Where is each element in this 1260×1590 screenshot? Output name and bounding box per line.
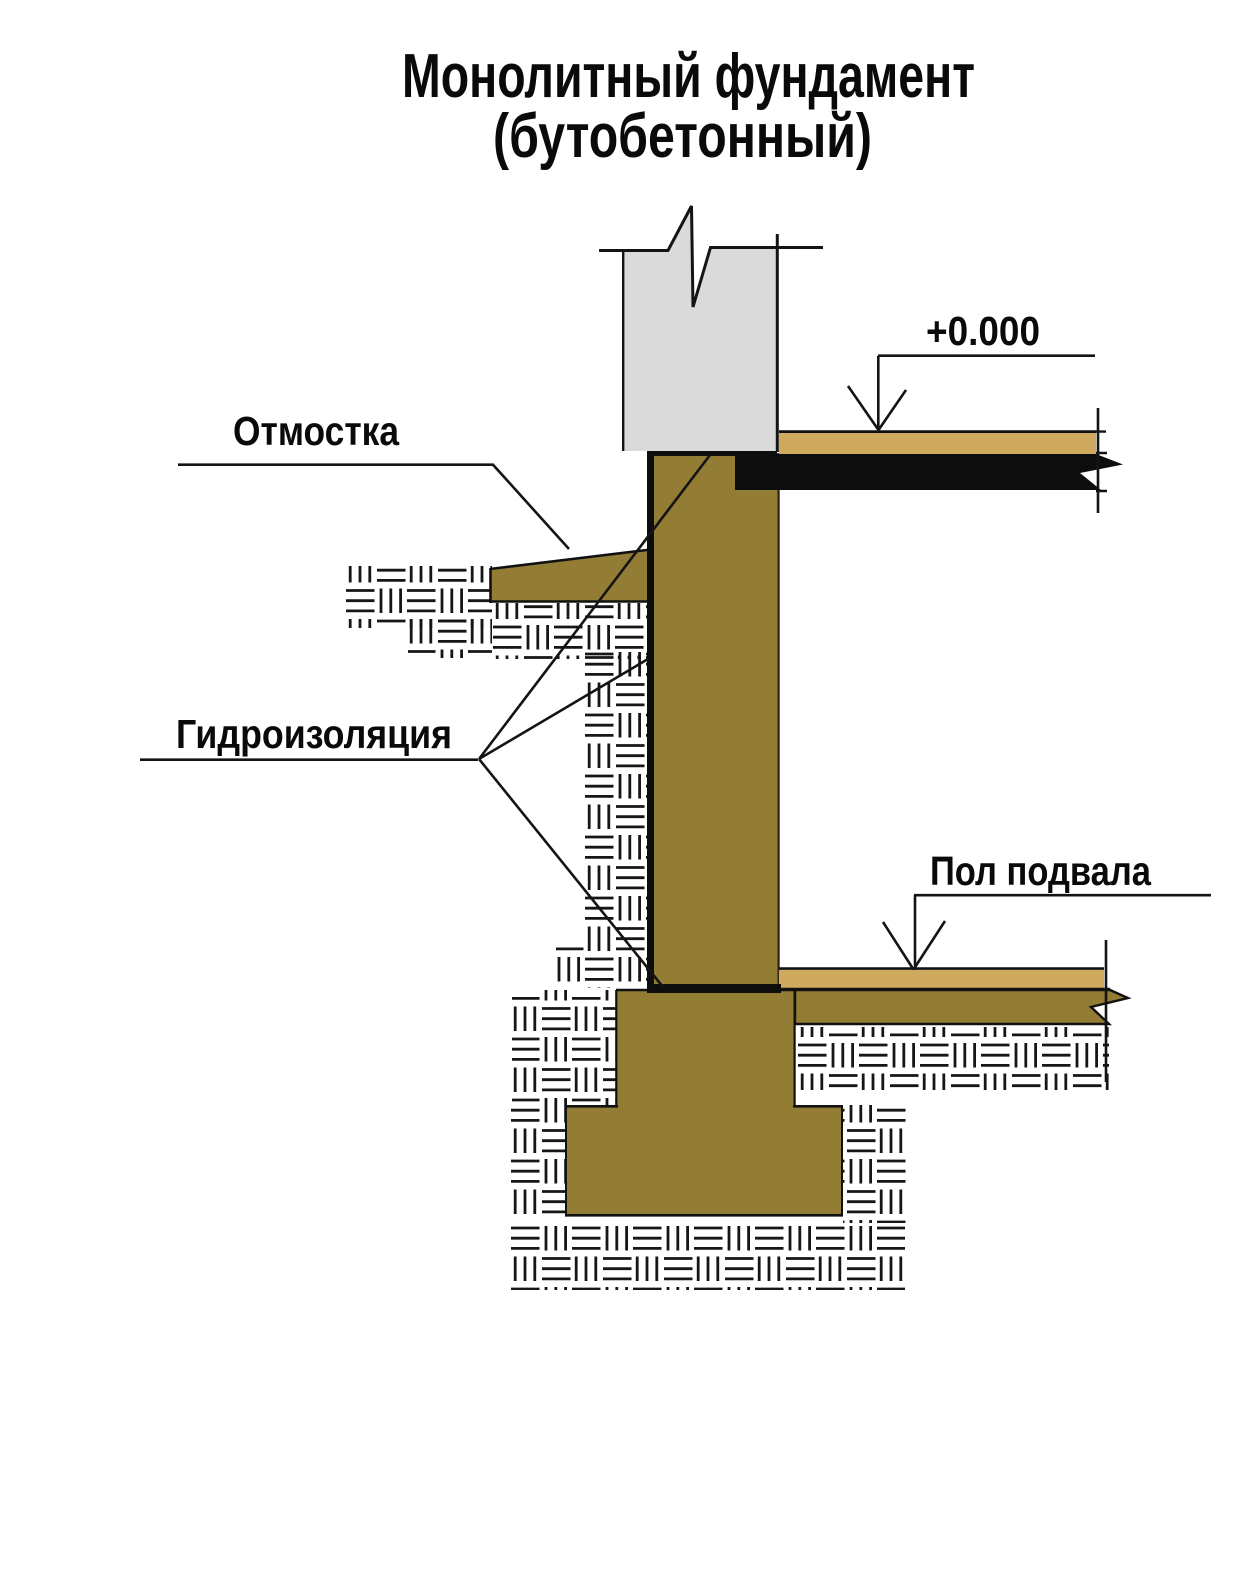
svg-text:Монолитный фундамент: Монолитный фундамент <box>402 42 975 111</box>
svg-text:Отмостка: Отмостка <box>233 408 400 454</box>
svg-text:(бутобетонный): (бутобетонный) <box>493 102 872 171</box>
svg-text:Гидроизоляция: Гидроизоляция <box>176 711 452 757</box>
svg-text:+0.000: +0.000 <box>926 308 1040 354</box>
svg-text:Пол подвала: Пол подвала <box>930 848 1152 894</box>
